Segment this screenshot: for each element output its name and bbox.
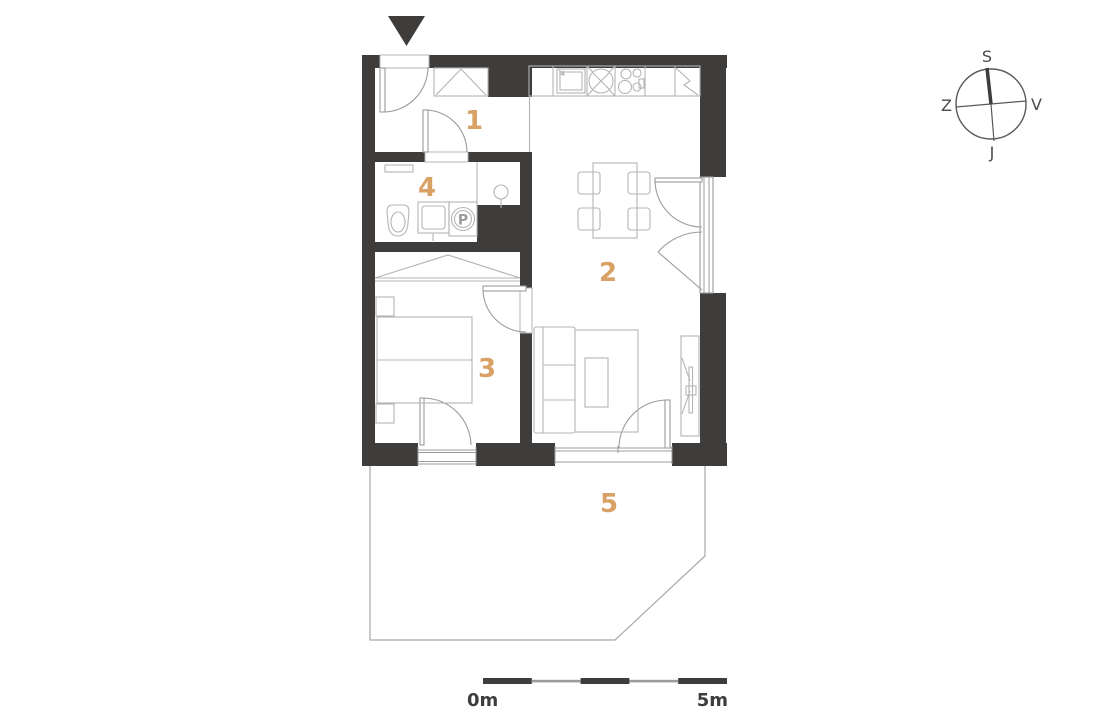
floor-plan-canvas: P bbox=[0, 0, 1094, 713]
room-label-5: 5 bbox=[600, 489, 618, 519]
stove-icon bbox=[619, 69, 645, 94]
wall-bottom-left bbox=[362, 443, 418, 466]
bedroom-terrace-door bbox=[420, 398, 471, 445]
room-label-1: 1 bbox=[465, 106, 483, 136]
compass-east-label: V bbox=[1031, 95, 1042, 114]
ceiling-lamp-icon bbox=[494, 185, 508, 208]
tv-unit bbox=[681, 336, 699, 436]
scale-segment bbox=[678, 678, 727, 684]
wall-bottom-right bbox=[672, 443, 727, 466]
dining-chair bbox=[628, 208, 650, 230]
fridge-icon bbox=[676, 68, 698, 95]
wall-right-lower bbox=[700, 293, 726, 466]
compass-rose: S V J Z bbox=[941, 47, 1042, 162]
hall-closet-doors bbox=[436, 69, 486, 95]
bathroom-shelf bbox=[385, 165, 413, 172]
balcony-door-glazing bbox=[700, 177, 713, 293]
living-terrace-glazing bbox=[555, 446, 672, 464]
wall-top-left-stub bbox=[362, 55, 380, 68]
bedroom-furniture bbox=[375, 255, 520, 423]
wall-hall-kitchen-chunk bbox=[488, 68, 532, 97]
compass-north-label: S bbox=[982, 47, 992, 66]
compass-north-needle bbox=[987, 68, 991, 104]
tv-screen bbox=[689, 367, 693, 413]
washing-machine-label: P bbox=[458, 213, 468, 229]
dining-chair bbox=[578, 172, 600, 194]
room-label-4: 4 bbox=[418, 173, 436, 203]
entrance-door bbox=[380, 67, 428, 112]
room-label-3: 3 bbox=[478, 354, 496, 384]
dining-chair bbox=[628, 172, 650, 194]
terrace-outline bbox=[370, 466, 705, 640]
dining-set bbox=[578, 163, 650, 238]
floor-plan-page: P bbox=[0, 0, 1094, 713]
compass-west-label: Z bbox=[941, 96, 952, 115]
room-label-2: 2 bbox=[599, 258, 617, 288]
living-terrace-door bbox=[619, 400, 670, 448]
wall-bathroom-top-a bbox=[375, 152, 425, 162]
scale-bar: 0m 5m bbox=[467, 678, 728, 711]
scale-start-label: 0m bbox=[467, 690, 498, 711]
scale-segment bbox=[483, 678, 532, 684]
bathroom-sink-icon bbox=[418, 202, 449, 241]
bathroom-door bbox=[423, 110, 467, 152]
scale-segment bbox=[581, 678, 630, 684]
wall-bathroom-bedroom bbox=[362, 242, 532, 252]
sofa bbox=[534, 327, 575, 433]
wall-left bbox=[362, 55, 375, 466]
kitchen-basin-icon bbox=[587, 66, 615, 96]
washing-machine-icon: P bbox=[449, 202, 477, 236]
compass-south-label: J bbox=[989, 143, 995, 162]
scale-segment bbox=[629, 680, 678, 683]
wall-interior-vertical-lower bbox=[520, 333, 532, 466]
bedroom-terrace-window bbox=[418, 447, 476, 465]
scale-end-label: 5m bbox=[697, 690, 728, 711]
entrance-marker-triangle bbox=[388, 16, 425, 46]
balcony-french-doors bbox=[655, 178, 702, 290]
bedroom-wardrobe bbox=[375, 255, 520, 281]
kitchen-counter bbox=[529, 66, 700, 96]
toilet-icon bbox=[387, 205, 409, 236]
nightstand bbox=[376, 404, 394, 423]
kitchen-sink-icon bbox=[557, 69, 585, 93]
nightstand bbox=[376, 297, 394, 316]
hall-closet bbox=[434, 68, 488, 96]
entrance-opening bbox=[380, 55, 429, 68]
coffee-table bbox=[585, 358, 608, 407]
scale-segment bbox=[532, 680, 581, 683]
wall-right-upper bbox=[700, 55, 726, 177]
bedroom-door-opening bbox=[520, 288, 532, 333]
dining-chair bbox=[578, 208, 600, 230]
wall-bottom-middle bbox=[476, 443, 555, 466]
living-room-furniture bbox=[534, 327, 699, 436]
bathroom-door-opening bbox=[425, 152, 468, 162]
